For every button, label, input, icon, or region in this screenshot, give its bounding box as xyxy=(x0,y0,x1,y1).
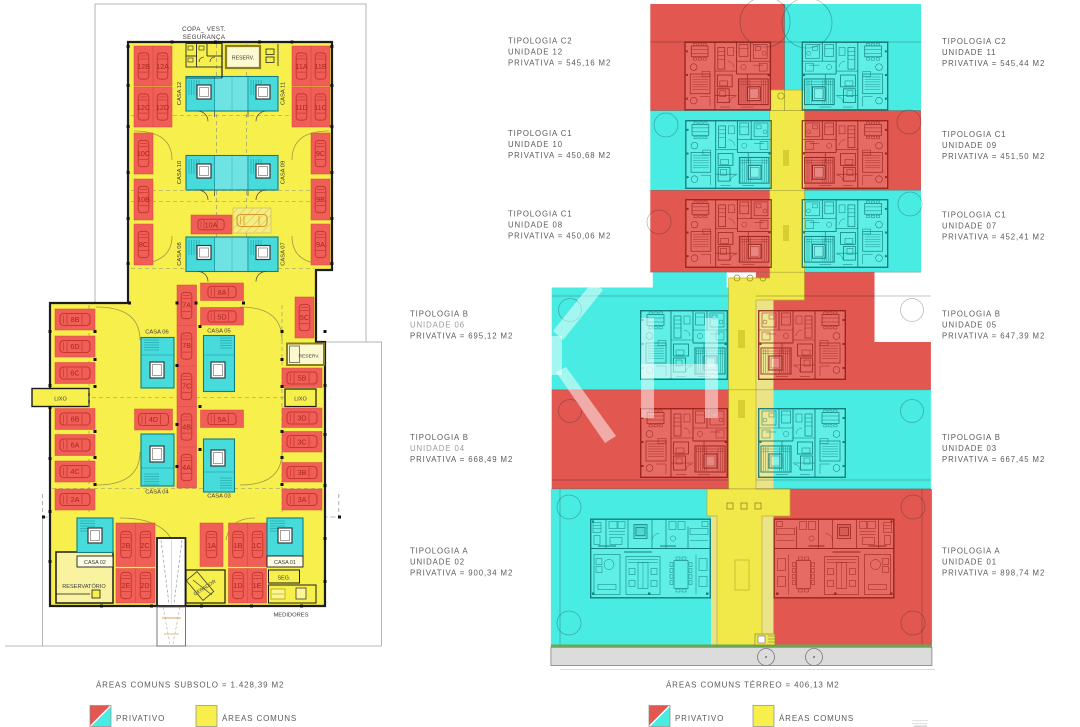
svg-text:TIPOLOGIA C1: TIPOLOGIA C1 xyxy=(942,211,1007,220)
svg-text:CASA 06: CASA 06 xyxy=(145,330,169,336)
svg-text:TIPOLOGIA C1: TIPOLOGIA C1 xyxy=(942,130,1007,139)
svg-text:7A: 7A xyxy=(182,301,191,310)
svg-text:3A: 3A xyxy=(298,495,307,504)
svg-text:UNIDADE 08: UNIDADE 08 xyxy=(508,221,563,230)
svg-text:PRIVATIVO: PRIVATIVO xyxy=(116,714,165,723)
svg-text:4A: 4A xyxy=(182,463,191,472)
svg-text:UNIDADE 10: UNIDADE 10 xyxy=(508,140,563,149)
svg-text:UNIDADE 03: UNIDADE 03 xyxy=(942,444,997,453)
svg-text:UNIDADE 07: UNIDADE 07 xyxy=(942,222,997,231)
svg-text:PRIVATIVA = 898,74 M2: PRIVATIVA = 898,74 M2 xyxy=(942,569,1045,578)
svg-text:2D: 2D xyxy=(140,581,149,590)
svg-text:RESERV.: RESERV. xyxy=(299,354,320,360)
svg-text:12D: 12D xyxy=(156,103,169,112)
svg-text:4C: 4C xyxy=(70,467,79,476)
svg-text:CASA 05: CASA 05 xyxy=(207,329,231,335)
svg-text:CASA 08: CASA 08 xyxy=(177,242,183,266)
svg-text:UNIDADE 09: UNIDADE 09 xyxy=(942,141,997,150)
svg-text:UNIDADE 04: UNIDADE 04 xyxy=(410,444,465,453)
svg-text:12B: 12B xyxy=(137,62,150,71)
svg-text:PRIVATIVA = 450,68 M2: PRIVATIVA = 450,68 M2 xyxy=(508,151,611,160)
svg-text:6B: 6B xyxy=(71,415,80,424)
svg-text:1A: 1A xyxy=(207,541,216,550)
svg-text:PRIVATIVA = 668,49 M2: PRIVATIVA = 668,49 M2 xyxy=(410,455,513,464)
svg-text:4B: 4B xyxy=(182,423,191,432)
svg-text:2B: 2B xyxy=(122,541,131,550)
svg-text:PRIVATIVA = 545,44 M2: PRIVATIVA = 545,44 M2 xyxy=(942,59,1045,68)
svg-text:SEG.: SEG. xyxy=(278,576,291,582)
svg-text:8A: 8A xyxy=(218,288,227,297)
svg-text:3B: 3B xyxy=(298,468,307,477)
svg-text:TIPOLOGIA A: TIPOLOGIA A xyxy=(410,547,468,556)
svg-text:PRIVATIVA = 695,12 M2: PRIVATIVA = 695,12 M2 xyxy=(410,332,513,341)
svg-text:PRIVATIVA = 667,45 M2: PRIVATIVA = 667,45 M2 xyxy=(942,455,1045,464)
svg-text:TIPOLOGIA B: TIPOLOGIA B xyxy=(410,433,469,442)
svg-text:CASA 07: CASA 07 xyxy=(281,242,287,266)
svg-text:CASA 10: CASA 10 xyxy=(177,161,183,185)
svg-text:5D: 5D xyxy=(217,313,226,322)
svg-text:5A: 5A xyxy=(218,415,227,424)
svg-text:CASA 04: CASA 04 xyxy=(145,490,169,496)
svg-text:3D: 3D xyxy=(297,414,306,423)
svg-text:RESERVATÓRIO: RESERVATÓRIO xyxy=(62,583,106,590)
svg-text:TIPOLOGIA B: TIPOLOGIA B xyxy=(942,433,1001,442)
svg-text:6A: 6A xyxy=(71,441,80,450)
svg-text:11C: 11C xyxy=(314,103,327,112)
svg-text:TIPOLOGIA B: TIPOLOGIA B xyxy=(410,310,469,319)
svg-text:UNIDADE 06: UNIDADE 06 xyxy=(410,321,465,330)
svg-text:6C: 6C xyxy=(70,369,79,378)
svg-text:2C: 2C xyxy=(140,541,149,550)
svg-text:9B: 9B xyxy=(316,195,325,204)
svg-text:CASA 02: CASA 02 xyxy=(84,560,106,566)
svg-text:8C: 8C xyxy=(139,240,148,249)
svg-text:CASA 03: CASA 03 xyxy=(207,494,231,500)
svg-text:5C: 5C xyxy=(300,313,309,322)
svg-text:RESERV.: RESERV. xyxy=(232,56,254,62)
svg-text:ÁREAS COMUNS SUBSOLO = 1.428,3: ÁREAS COMUNS SUBSOLO = 1.428,39 M2 xyxy=(96,681,284,690)
svg-text:7C: 7C xyxy=(182,382,191,391)
svg-text:6D: 6D xyxy=(70,342,79,351)
svg-text:PRIVATIVO: PRIVATIVO xyxy=(675,714,724,723)
svg-text:5B: 5B xyxy=(298,374,307,383)
svg-text:LIXO: LIXO xyxy=(54,397,67,403)
svg-text:TIPOLOGIA A: TIPOLOGIA A xyxy=(942,547,1000,556)
svg-text:UNIDADE 12: UNIDADE 12 xyxy=(508,48,563,57)
svg-text:7B: 7B xyxy=(182,341,191,350)
svg-text:1E: 1E xyxy=(253,581,262,590)
svg-text:PRIVATIVA = 545,16 M2: PRIVATIVA = 545,16 M2 xyxy=(508,59,611,68)
svg-text:TIPOLOGIA C1: TIPOLOGIA C1 xyxy=(508,129,573,138)
svg-text:PRIVATIVA = 451,50 M2: PRIVATIVA = 451,50 M2 xyxy=(942,152,1045,161)
svg-text:CASA 12: CASA 12 xyxy=(177,82,183,106)
svg-text:UNIDADE 05: UNIDADE 05 xyxy=(942,321,997,330)
svg-text:1D: 1D xyxy=(233,581,242,590)
svg-text:12C: 12C xyxy=(137,103,150,112)
svg-text:10C: 10C xyxy=(137,149,150,158)
svg-text:10A: 10A xyxy=(205,221,218,230)
svg-text:UNIDADE 01: UNIDADE 01 xyxy=(942,558,997,567)
svg-text:1B: 1B xyxy=(234,541,243,550)
svg-text:ÁREAS COMUNS: ÁREAS COMUNS xyxy=(222,714,297,723)
svg-text:11B: 11B xyxy=(314,62,326,71)
svg-text:CASA 11: CASA 11 xyxy=(281,82,287,105)
svg-text:11D: 11D xyxy=(295,103,308,112)
svg-text:COPA_ VEST.: COPA_ VEST. xyxy=(182,26,226,33)
svg-text:CASA 09: CASA 09 xyxy=(281,161,287,185)
svg-text:11A: 11A xyxy=(295,62,307,71)
svg-text:3C: 3C xyxy=(297,438,306,447)
svg-text:2A: 2A xyxy=(71,495,80,504)
svg-text:LIXO: LIXO xyxy=(294,397,307,403)
svg-text:1C: 1C xyxy=(252,541,261,550)
svg-text:PRIVATIVA = 647,39 M2: PRIVATIVA = 647,39 M2 xyxy=(942,332,1045,341)
svg-text:9A: 9A xyxy=(316,240,325,249)
svg-text:12A: 12A xyxy=(156,62,169,71)
svg-text:TIPOLOGIA C2: TIPOLOGIA C2 xyxy=(942,37,1007,46)
svg-text:TIPOLOGIA B: TIPOLOGIA B xyxy=(942,310,1001,319)
svg-text:TIPOLOGIA C1: TIPOLOGIA C1 xyxy=(508,210,573,219)
svg-text:ÁREAS COMUNS: ÁREAS COMUNS xyxy=(779,714,854,723)
svg-text:UNIDADE 02: UNIDADE 02 xyxy=(410,558,465,567)
svg-text:SEGURANÇA: SEGURANÇA xyxy=(183,34,226,41)
svg-text:PRIVATIVA = 452,41 M2: PRIVATIVA = 452,41 M2 xyxy=(942,233,1045,242)
svg-text:8B: 8B xyxy=(71,315,80,324)
svg-text:MEDIDORES: MEDIDORES xyxy=(273,613,308,619)
svg-text:2E: 2E xyxy=(122,581,131,590)
svg-text:PRIVATIVA = 450,06 M2: PRIVATIVA = 450,06 M2 xyxy=(508,232,611,241)
svg-text:4D: 4D xyxy=(149,415,158,424)
svg-text:UNIDADE 11: UNIDADE 11 xyxy=(942,48,996,57)
svg-text:10B: 10B xyxy=(137,195,150,204)
svg-text:CASA 01: CASA 01 xyxy=(274,560,296,566)
svg-text:TIPOLOGIA C2: TIPOLOGIA C2 xyxy=(508,37,573,46)
svg-text:9C: 9C xyxy=(316,149,325,158)
svg-text:PRIVATIVA = 900,34 M2: PRIVATIVA = 900,34 M2 xyxy=(410,569,513,578)
svg-text:ÁREAS COMUNS TÉRREO = 406,13 M: ÁREAS COMUNS TÉRREO = 406,13 M2 xyxy=(666,681,840,690)
